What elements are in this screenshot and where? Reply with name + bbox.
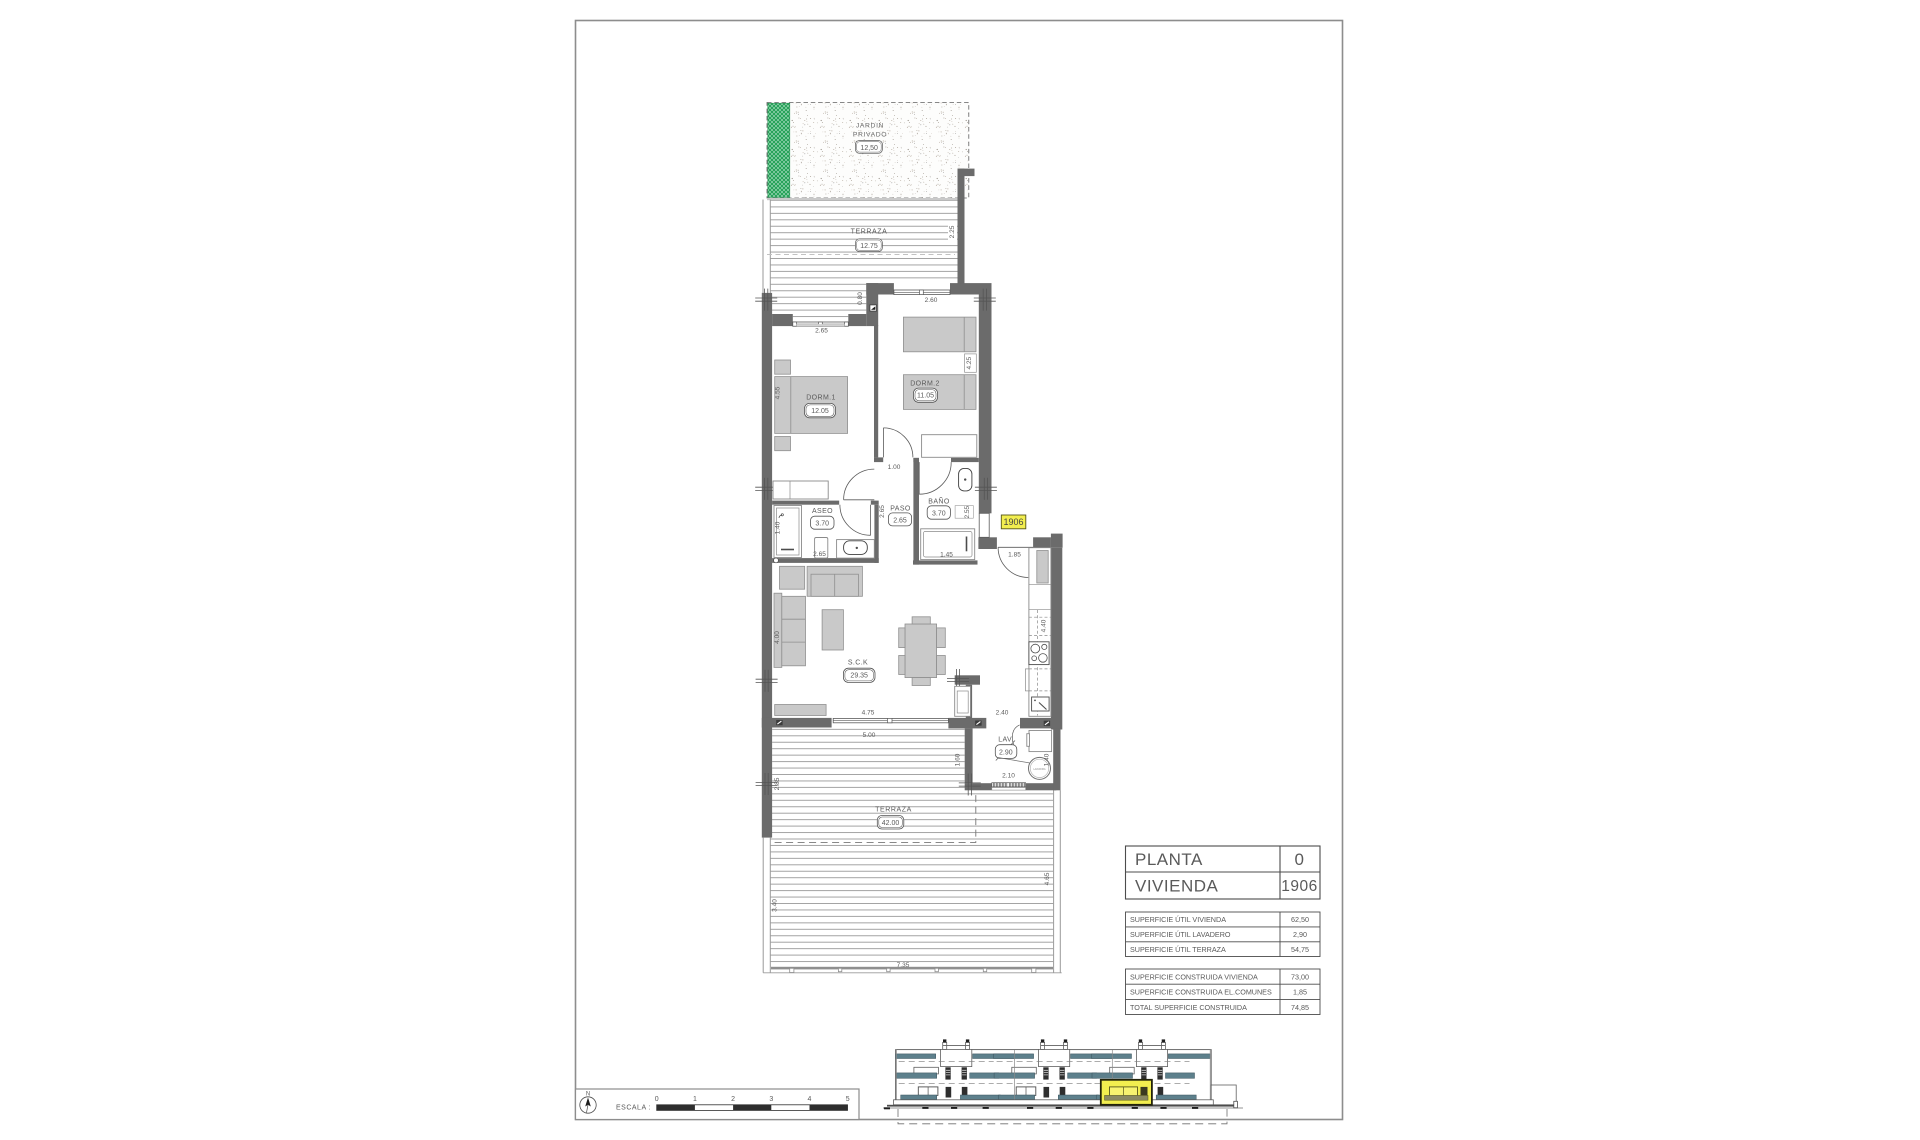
svg-text:2.55: 2.55 <box>964 505 971 518</box>
svg-text:SUPERFICIE CONSTRUIDA EL.COMUN: SUPERFICIE CONSTRUIDA EL.COMUNES <box>1130 988 1272 997</box>
svg-text:12,50: 12,50 <box>860 145 878 152</box>
svg-text:2.85: 2.85 <box>774 777 781 790</box>
svg-text:3.70: 3.70 <box>932 510 946 517</box>
svg-text:1.60: 1.60 <box>955 753 962 766</box>
svg-text:ASEO: ASEO <box>812 508 833 515</box>
svg-text:TERRAZA: TERRAZA <box>851 229 888 236</box>
svg-text:PRIVADO: PRIVADO <box>853 132 887 139</box>
svg-text:4.40: 4.40 <box>1041 619 1048 632</box>
svg-text:LAV.: LAV. <box>998 737 1014 744</box>
svg-text:3: 3 <box>769 1096 773 1103</box>
svg-text:PLANTA: PLANTA <box>1135 850 1203 869</box>
svg-text:54,75: 54,75 <box>1291 945 1309 954</box>
svg-text:S.C.K: S.C.K <box>848 660 868 667</box>
svg-text:42.00: 42.00 <box>882 820 900 827</box>
svg-text:2: 2 <box>731 1096 735 1103</box>
svg-text:ESCALA :: ESCALA : <box>616 1105 651 1112</box>
svg-text:11.05: 11.05 <box>917 393 934 400</box>
svg-text:1.40: 1.40 <box>1044 753 1051 766</box>
svg-text:PASO: PASO <box>890 506 911 513</box>
svg-text:5.00: 5.00 <box>863 732 876 739</box>
svg-text:2.65: 2.65 <box>815 328 828 335</box>
svg-text:2.60: 2.60 <box>925 297 938 304</box>
svg-text:0: 0 <box>655 1096 659 1103</box>
svg-text:4.75: 4.75 <box>862 710 875 717</box>
svg-text:4.65: 4.65 <box>1044 872 1051 885</box>
svg-text:TERRAZA: TERRAZA <box>875 807 912 814</box>
svg-text:7.35: 7.35 <box>897 962 910 969</box>
svg-text:3.40: 3.40 <box>772 899 779 912</box>
svg-text:2,90: 2,90 <box>1293 930 1307 939</box>
svg-text:BAÑO: BAÑO <box>928 497 950 506</box>
svg-text:74,85: 74,85 <box>1291 1003 1309 1012</box>
svg-text:JARDIN: JARDIN <box>856 123 884 130</box>
svg-text:0.80: 0.80 <box>857 292 864 305</box>
svg-text:DORM.1: DORM.1 <box>806 395 836 402</box>
svg-text:SUPERFICIE ÚTIL LAVADERO: SUPERFICIE ÚTIL LAVADERO <box>1130 930 1231 939</box>
svg-text:4: 4 <box>808 1096 812 1103</box>
svg-text:1.45: 1.45 <box>940 551 953 558</box>
svg-text:DORM.2: DORM.2 <box>910 380 940 387</box>
svg-text:1.00: 1.00 <box>888 464 901 471</box>
svg-text:SUPERFICIE ÚTIL VIVIENDA: SUPERFICIE ÚTIL VIVIENDA <box>1130 915 1226 924</box>
svg-text:0: 0 <box>1295 850 1305 869</box>
svg-text:4.55: 4.55 <box>775 386 782 399</box>
svg-text:1906: 1906 <box>1003 517 1023 527</box>
svg-text:2.10: 2.10 <box>1002 773 1015 780</box>
svg-text:1: 1 <box>693 1096 697 1103</box>
svg-text:1,85: 1,85 <box>1293 988 1307 997</box>
svg-text:SUPERFICIE ÚTIL TERRAZA: SUPERFICIE ÚTIL TERRAZA <box>1130 945 1226 954</box>
svg-text:1906: 1906 <box>1281 878 1317 895</box>
svg-text:12.75: 12.75 <box>860 243 878 250</box>
svg-text:2.90: 2.90 <box>999 749 1013 756</box>
svg-text:2.65: 2.65 <box>813 551 826 558</box>
svg-text:2.40: 2.40 <box>996 710 1009 717</box>
svg-text:3.70: 3.70 <box>815 521 829 528</box>
svg-text:1.85: 1.85 <box>1008 552 1021 559</box>
svg-text:SUPERFICIE CONSTRUIDA VIVIENDA: SUPERFICIE CONSTRUIDA VIVIENDA <box>1130 972 1258 981</box>
svg-text:2.25: 2.25 <box>949 225 956 238</box>
svg-text:VIVIENDA: VIVIENDA <box>1135 877 1219 896</box>
svg-text:4.00: 4.00 <box>774 631 781 644</box>
svg-text:62,50: 62,50 <box>1291 915 1309 924</box>
svg-text:LAVADORA: LAVADORA <box>1033 768 1046 771</box>
svg-text:29.35: 29.35 <box>850 673 868 680</box>
svg-text:TOTAL SUPERFICIE CONSTRUIDA: TOTAL SUPERFICIE CONSTRUIDA <box>1130 1003 1247 1012</box>
svg-text:12.05: 12.05 <box>811 408 829 415</box>
svg-text:2.65: 2.65 <box>893 517 907 524</box>
svg-text:2.65: 2.65 <box>879 505 886 518</box>
svg-text:73,00: 73,00 <box>1291 972 1309 981</box>
svg-text:4.25: 4.25 <box>966 356 973 369</box>
svg-text:1.40: 1.40 <box>774 521 781 534</box>
svg-text:5: 5 <box>846 1096 850 1103</box>
